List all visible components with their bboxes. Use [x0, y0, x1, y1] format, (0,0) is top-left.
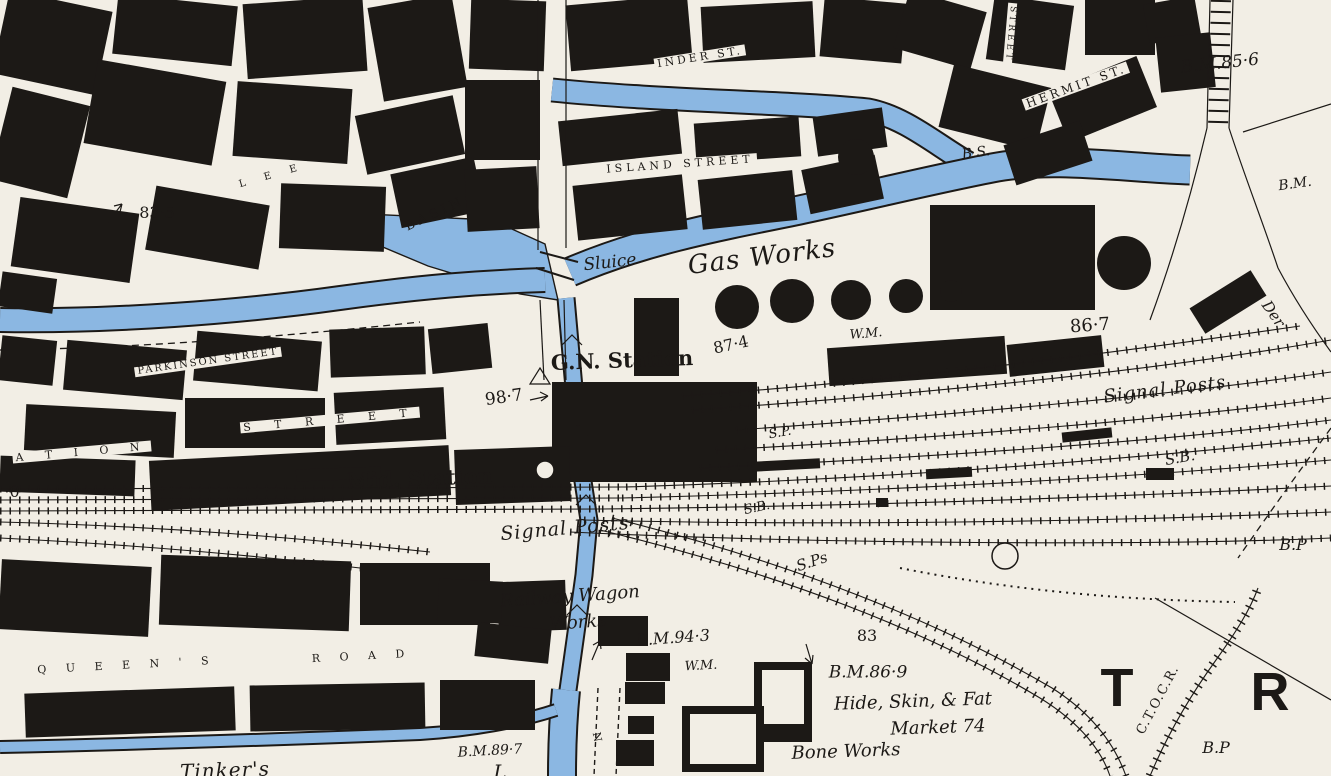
label-bp-south: B.P — [1202, 740, 1230, 756]
label-street-vertical: STREET — [1003, 3, 1017, 66]
label-bm-86-9: B.M.86·9 — [829, 665, 908, 682]
label-street-island: ISLAND STREET — [603, 153, 757, 175]
label-street-lee: L E E — [235, 161, 309, 191]
labels-layer: INDER ST.STREETHERMIT ST.B.M.85·6B.M.ISL… — [0, 0, 1331, 776]
label-wagon-works: Works — [549, 612, 607, 634]
label-spot-86-7: 86·7 — [1069, 316, 1110, 337]
label-street-parkinson: PARKINSON STREET — [134, 347, 282, 378]
label-basin: BASIN — [403, 195, 467, 234]
label-bm-94-3: B.M.94·3 — [636, 627, 711, 648]
label-street-inder: INDER ST. — [654, 44, 747, 69]
label-tinkers: Tinker's — [180, 758, 271, 776]
label-spot-83-5: 83·5 — [139, 205, 175, 221]
label-wm-gasworks: W.M. — [849, 326, 883, 342]
label-letter-t: T — [1101, 661, 1134, 715]
label-sb-center: S.B. — [743, 499, 771, 517]
label-bone-works: Bone Works — [791, 741, 900, 763]
label-bp-east: B.P — [1279, 537, 1307, 553]
label-street-queens: Q U E E N ' S — [34, 655, 220, 676]
label-ctocr: C.T.O.C.R. — [1134, 663, 1181, 736]
label-letter-r: R — [1251, 665, 1290, 719]
label-der-fragment: Der — [1259, 298, 1287, 330]
label-sb-east: S.B. — [1164, 448, 1196, 468]
label-spot-83: 83 — [857, 628, 877, 644]
label-market-74: Market 74 — [890, 717, 986, 738]
label-hide-skin-fat: Hide, Skin, & Fat — [834, 690, 993, 714]
label-mid-station: Mid. Station — [347, 465, 494, 491]
label-bm-right-edge: B.M. — [1277, 175, 1312, 194]
label-spot-0: ·0 — [4, 484, 19, 500]
label-spot-87-4: 87·4 — [712, 333, 750, 356]
label-signal-posts-center: Signal Posts — [500, 514, 631, 544]
label-sp: S.P. — [768, 425, 793, 442]
label-sps: S.Ps — [795, 550, 830, 574]
label-gas-works: Gas Works — [686, 235, 837, 279]
label-signal-posts-east: Signal Posts — [1103, 374, 1228, 407]
label-railway-wagon: Railway Wagon — [500, 583, 641, 611]
label-spot-98-7: 98·7 — [484, 387, 524, 409]
label-gn-station: G.N. Station — [550, 347, 693, 373]
label-street-station-b: S T R E E T — [240, 407, 420, 434]
label-l-fragment: L — [493, 762, 506, 776]
label-sluice: Sluice — [583, 252, 638, 274]
label-wm-south: W.M. — [684, 659, 717, 674]
label-bm-85-6: B.M.85·6 — [1180, 51, 1260, 76]
label-street-hermit: HERMIT ST. — [1022, 61, 1131, 110]
map-canvas: INDER ST.STREETHERMIT ST.B.M.85·6B.M.ISL… — [0, 0, 1331, 776]
label-street-road: R O A D — [309, 648, 416, 665]
label-street-station-a: A T I O N — [12, 440, 152, 463]
label-n-lock: N — [591, 731, 604, 743]
label-bs: B.S. — [961, 144, 991, 162]
label-bm-89-7: B.M.89·7 — [457, 742, 522, 759]
